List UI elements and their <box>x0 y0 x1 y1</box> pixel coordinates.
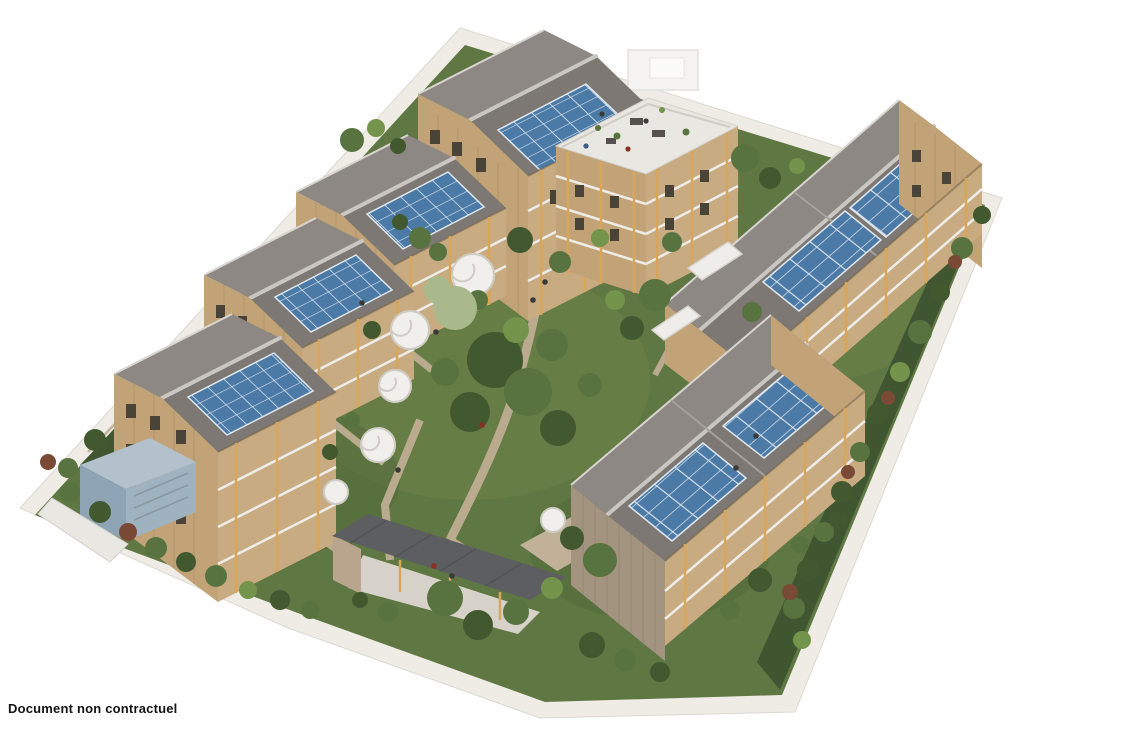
site-plan-illustration <box>0 0 1140 733</box>
disclaimer-text: Document non contractuel <box>8 701 177 716</box>
architectural-rendering: Document non contractuel <box>0 0 1140 733</box>
background-sketch-structure <box>628 50 698 90</box>
